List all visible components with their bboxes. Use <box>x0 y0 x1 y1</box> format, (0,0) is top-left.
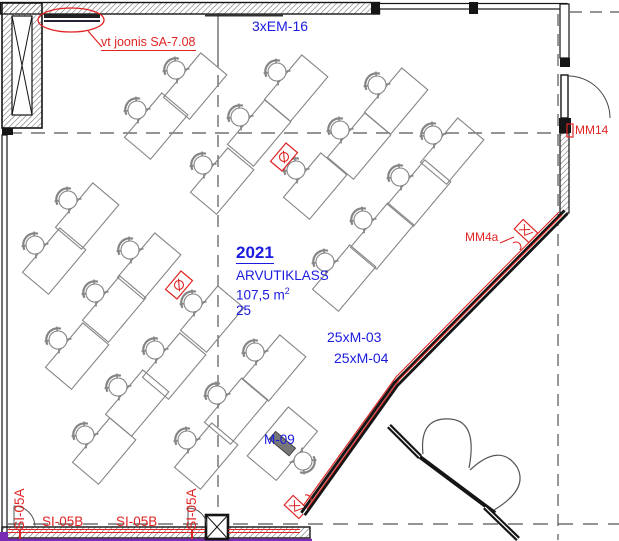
label-riser-a1: SI-05A <box>13 482 27 536</box>
door-arc-diagonal-1 <box>423 419 472 468</box>
lintel-element <box>44 14 100 19</box>
door-jamb <box>560 58 570 67</box>
desk-unit <box>67 263 146 342</box>
label-monitors-1: 25xM-03 <box>327 330 381 345</box>
wall-left <box>2 135 7 541</box>
wall-top <box>1 3 380 15</box>
desk-unit <box>312 100 391 179</box>
trunking-purple-block <box>0 532 8 541</box>
label-device-door: MM14 <box>575 124 608 137</box>
desk-unit <box>57 405 136 484</box>
desk-unit <box>175 135 254 214</box>
door-jamb-core <box>389 426 420 457</box>
desk-unit <box>189 365 268 444</box>
label-cable-top: 3xEM-16 <box>252 19 308 34</box>
door-arc-right <box>568 76 610 118</box>
wall-block <box>469 2 478 14</box>
desk-unit <box>349 55 428 134</box>
desk-unit <box>90 357 169 436</box>
desk-unit <box>335 190 414 269</box>
desk-unit <box>405 105 484 184</box>
desk-unit <box>249 42 328 121</box>
desk-unit <box>30 310 109 389</box>
room-area-sup: 2 <box>285 286 290 296</box>
label-trunking-b1: SI-05B <box>42 515 83 529</box>
label-teacher-unit: M-09 <box>264 433 295 447</box>
label-device-wall: MM4a <box>465 231 498 244</box>
desk-unit <box>227 322 306 401</box>
desk-unit <box>159 410 238 489</box>
speaker-icon <box>514 219 537 242</box>
label-riser-a2: SI-05A <box>185 482 199 536</box>
room-area: 107,5 m2 <box>236 287 290 303</box>
door-leaf-right <box>561 75 568 118</box>
desk-unit <box>148 40 227 119</box>
room-name: ARVUTIKLASS <box>236 269 329 283</box>
wall-block <box>2 128 13 135</box>
wall-right-lower <box>560 133 569 213</box>
floorplan: 3xEM-16 vt joonis SA-7.08 2021 ARVUTIKLA… <box>0 0 619 541</box>
desk-unit <box>127 320 206 399</box>
desk-unit <box>7 215 86 294</box>
door-leaves-diagonal <box>420 457 495 513</box>
label-trunking-b2: SI-05B <box>116 515 157 529</box>
desk-unit <box>372 147 451 226</box>
wall-top-lintel <box>205 14 283 17</box>
label-ref-drawing: vt joonis SA-7.08 <box>101 36 196 51</box>
label-monitors-2: 25xM-04 <box>334 351 388 366</box>
room-capacity: 25 <box>236 304 251 318</box>
door-jamb-core <box>485 507 518 539</box>
door-jamb <box>559 118 571 133</box>
speaker-box <box>514 219 537 242</box>
leader-line <box>500 237 514 243</box>
room-number: 2021 <box>236 244 274 264</box>
wall-right-upper <box>560 4 569 58</box>
room-area-value: 107,5 m <box>236 288 285 303</box>
wall-block <box>371 2 380 14</box>
desk-unit <box>109 80 188 159</box>
speaker-arc <box>513 242 521 250</box>
leader-line <box>88 31 102 47</box>
